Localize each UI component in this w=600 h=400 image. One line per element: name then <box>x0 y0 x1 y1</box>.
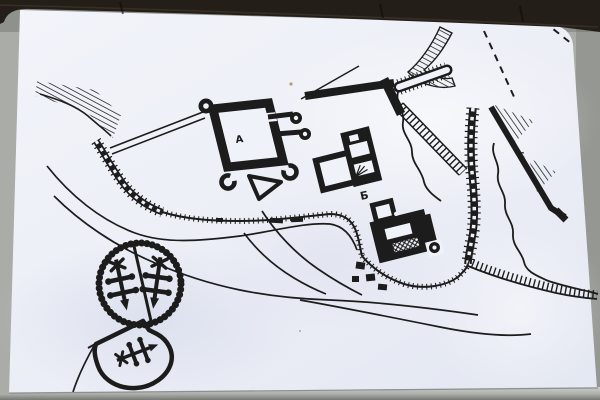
paper-shadow-patch-2 <box>210 190 450 330</box>
label-wall-c: c <box>518 150 525 161</box>
paper-speck <box>289 82 292 85</box>
map-board-photo: A Б c <box>0 0 600 400</box>
photo-of-map-board: A Б c <box>0 0 600 400</box>
gatehouse-tower-1-hole <box>294 116 298 120</box>
keep-tower-ring-nw-hole <box>203 103 209 109</box>
paper-dot <box>299 330 301 332</box>
gatehouse-tower-2-hole <box>303 132 307 136</box>
